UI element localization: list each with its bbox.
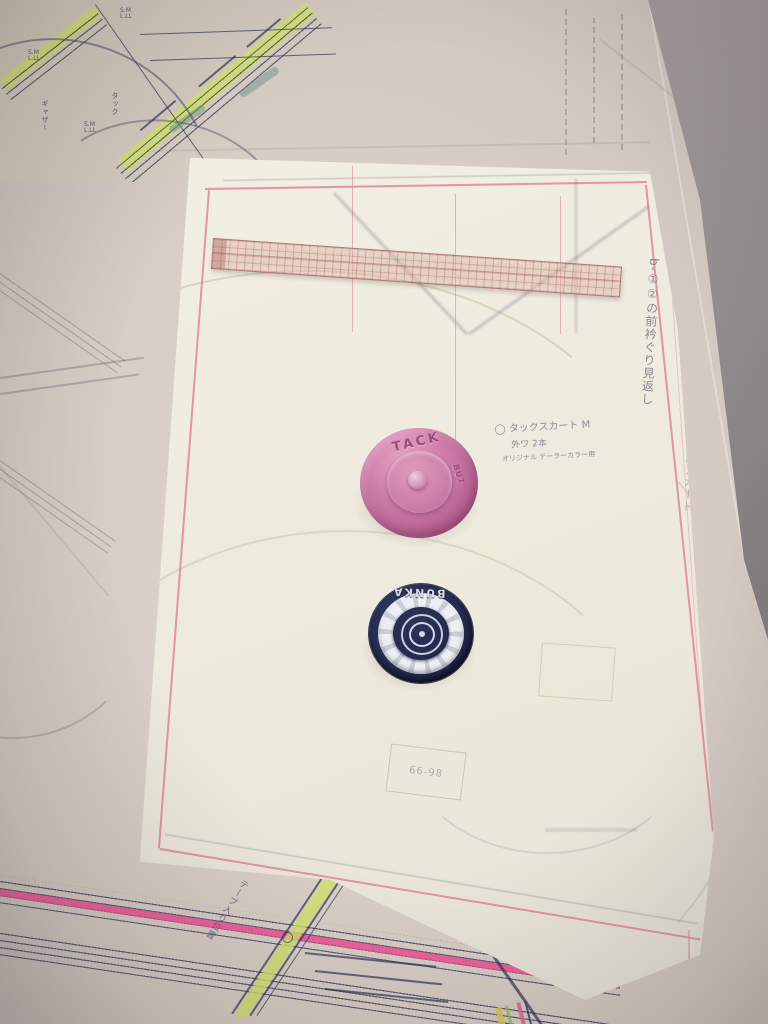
pink-pattern-weight: TACK BUT	[360, 428, 478, 538]
ruler-end-cap	[212, 239, 227, 269]
printed-pattern-block-topleft: ギャザー タック S.M L.LL S.M L.LL S.M L.LL	[0, 0, 345, 182]
showthrough-box	[538, 642, 616, 701]
navy-weight-inner-disc	[393, 607, 449, 660]
pattern-circle-mark	[282, 932, 293, 943]
showthrough-text-block	[555, 0, 650, 165]
sheet-top-line	[223, 172, 655, 181]
size-label-bottom: L.LL	[120, 14, 132, 20]
navy-pattern-weight: BUNKA	[369, 584, 473, 683]
size-label-bottom: L.LL	[28, 56, 40, 62]
pattern-curve	[0, 495, 144, 739]
showthrough-text-column	[565, 5, 567, 155]
showthrough-text-column	[621, 10, 623, 150]
gather-label: ギャザー	[42, 100, 48, 132]
size-label-pair: S.M L.LL	[28, 50, 40, 62]
tuck-label: タック	[112, 92, 118, 116]
pattern-line-bundle	[0, 225, 128, 373]
faint-size-box: 66-98	[385, 744, 466, 801]
photo-canvas: ギャザー タック S.M L.LL S.M L.LL S.M L.LL	[0, 0, 768, 1024]
printed-pattern-strip-left	[0, 165, 155, 875]
pattern-rule-line	[0, 374, 139, 395]
pencil-note: ◯ タックスカート M 外ワ 2本 オリジナル テーラーカラー用	[494, 412, 666, 465]
size-label-pair: S.M L.LL	[84, 122, 96, 134]
traced-border-top	[205, 181, 647, 190]
pink-weight-embossed-side-text: BUT	[450, 463, 465, 486]
pattern-piece-label-front-neck-facing: b-①②の前衿ぐり見返し	[638, 258, 663, 419]
navy-weight-embossed-text: BUNKA	[392, 585, 446, 600]
showthrough-text-column	[593, 18, 595, 143]
showthrough-vertical-line	[575, 178, 577, 333]
showthrough-text-row	[545, 828, 637, 832]
pattern-curve	[0, 920, 199, 1024]
faint-size-box-label: 66-98	[408, 764, 443, 779]
size-label-pair: S.M L.LL	[120, 8, 132, 20]
size-label-bottom: L.LL	[84, 128, 96, 134]
